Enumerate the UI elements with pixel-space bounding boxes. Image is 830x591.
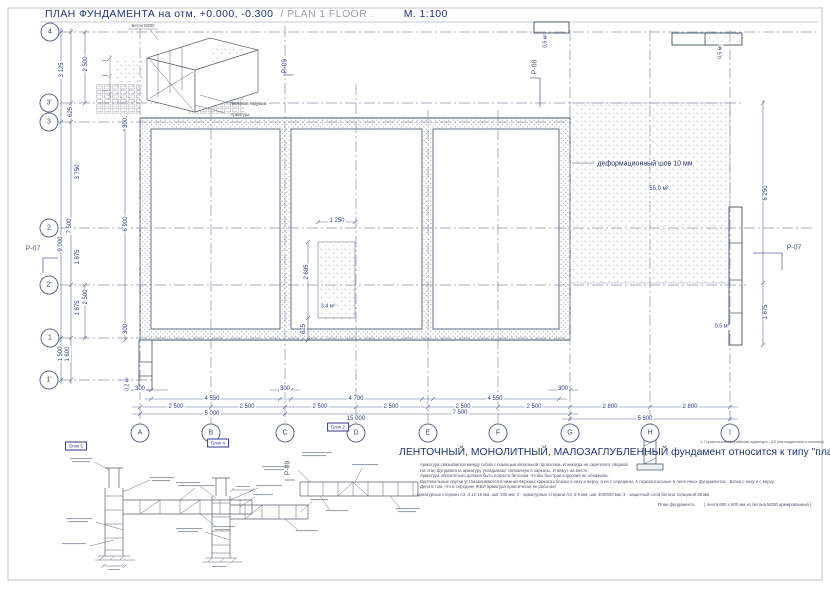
axis-bubble-h: H <box>641 424 660 443</box>
block4-label: Блок 4 <box>207 439 229 448</box>
footer-spec-label: ( лента 600 х 600 мм из бетона М200 арми… <box>704 503 811 507</box>
dim-left-1600: 1 600 <box>65 345 71 362</box>
dim-left-9000: 9 000 <box>58 235 64 252</box>
foundation-plan-sheet: ПЛАН ФУНДАМЕНТА на отм. +0.000, -0.300/ … <box>0 0 830 591</box>
dim-left-1500: 1 500 <box>58 345 64 362</box>
dim-right-1875: 1 875 <box>763 303 769 320</box>
dim-total-15000: 15 000 <box>346 416 366 422</box>
area-pit-label: 3,4 м² <box>320 304 337 310</box>
dim-left-7500: 7 500 <box>67 217 73 234</box>
dim-300-a: 300 <box>134 386 146 392</box>
axis-bubble-left-2p: 2' <box>40 276 59 295</box>
foundation-type-heading: ЛЕНТОЧНЫЙ, МОНОЛИТНЫЙ, МАЛОЗАГЛУБЛЕННЫЙ … <box>399 447 830 458</box>
axis-bubble-d: D <box>347 424 366 443</box>
dim-step-ab: 2 500 <box>167 404 184 410</box>
section-label-p08: Р-08 <box>532 59 539 76</box>
axis-bubble-left-3p: 3' <box>40 94 59 113</box>
axis-bubble-g: G <box>561 424 580 443</box>
note-line-1: Арматура связывается между собой с помощ… <box>420 463 629 467</box>
block2-label: Блок 2 <box>327 423 349 432</box>
section-label-p07-left: Р-07 <box>25 246 42 253</box>
dim-left-3750: 3 750 <box>75 163 81 180</box>
dim-span-ac: 4 550 <box>203 396 220 402</box>
dim-step-bc: 2 500 <box>238 404 255 410</box>
area-block-tr: 0,5 м² <box>719 44 724 59</box>
dim-pit-2685: 2 685 <box>304 263 310 280</box>
area-block-tl: 0,5 м² <box>544 33 549 48</box>
section-detail-3 <box>298 468 418 510</box>
area-block-right: 0,5 м² <box>714 324 731 330</box>
dim-pit-625: 625 <box>301 323 307 335</box>
axis-bubble-left-4: 4 <box>41 23 60 42</box>
dim-step-cd: 2 500 <box>311 404 328 410</box>
dim-total-5000: 5 000 <box>203 411 220 417</box>
micro-annotations <box>62 60 420 570</box>
note-line-3: Арматура обязательно должна быть покрыта… <box>420 474 609 478</box>
dim-left-1875b: 1 875 <box>75 299 81 316</box>
dim-300-g: 300 <box>557 386 569 392</box>
footer-plan-label: План фундамента <box>658 503 694 507</box>
iso-concrete-label: Бетон М200 <box>130 24 155 28</box>
dim-left-625: 625 <box>68 106 74 118</box>
axis-bubble-left-1: 1 <box>41 329 60 348</box>
dim-left-3125: 3 125 <box>59 61 65 78</box>
axis-bubble-f: F <box>489 424 508 443</box>
dim-300-c: 300 <box>279 386 291 392</box>
section-detail-2 <box>200 478 312 562</box>
dim-span-eg: 4 550 <box>486 396 503 402</box>
dim-right-6250: 6 250 <box>763 184 769 201</box>
axis-bubble-left-1p: 1' <box>40 371 59 390</box>
dim-left-1875a: 1 875 <box>75 248 81 265</box>
rebar-legend-line: 1. Горизонтальная рабочая арматура - А3 … <box>700 439 824 444</box>
dim-step-gh: 2 800 <box>601 404 618 410</box>
dim-step-fg: 2 500 <box>525 404 542 410</box>
dim-step-de: 2 500 <box>382 404 399 410</box>
title-scale: М. 1:100 <box>404 8 448 20</box>
dim-plan-6900: 6 900 <box>123 215 129 232</box>
section-label-p09-detail: Р-09 <box>285 460 292 477</box>
bottom-left-blocks <box>139 340 152 390</box>
drawing-title: ПЛАН ФУНДАМЕНТА на отм. +0.000, -0.300/ … <box>45 8 448 20</box>
iso-rebar-label: Арматура <box>230 113 251 117</box>
axis-bubble-left-2: 2 <box>40 219 59 238</box>
block5-label: Блок 5 <box>65 442 87 451</box>
dim-plan-300-top: 300 <box>123 117 129 129</box>
dim-span-ce: 4 700 <box>347 396 364 402</box>
axis-bubble-left-3: 3 <box>40 113 59 132</box>
dim-left-2500a: 2 500 <box>83 55 89 72</box>
area-slab-label: 55,0 м² <box>648 186 669 192</box>
axis-bubble-e: E <box>419 424 438 443</box>
section-label-p07-right: Р-07 <box>786 245 803 252</box>
area-block-bl: 0,2 м² <box>126 376 131 391</box>
deform-joint-label: деформационный шов 10 мм <box>596 161 693 168</box>
note-line-6: - арматурные стержни А3, d 12-16 мм, шаг… <box>414 493 709 497</box>
dim-left-2500b: 2 500 <box>83 288 89 305</box>
dim-step-hi: 2 800 <box>681 404 698 410</box>
dim-plan-300-bot: 300 <box>123 323 129 335</box>
section-label-p09-top: Р-09 <box>282 58 289 75</box>
title-main: ПЛАН ФУНДАМЕНТА на отм. +0.000, -0.300 <box>45 8 273 20</box>
top-footing-blocks <box>534 22 742 45</box>
axis-bubble-a: A <box>131 424 150 443</box>
dim-pit-1250: 1 250 <box>328 218 345 224</box>
note-line-5: Дело в том, что в середине ЖБИ арматура … <box>420 485 557 489</box>
title-secondary: / PLAN 1 FLOOR . <box>280 8 373 20</box>
dim-total-5600: 5 600 <box>636 416 653 422</box>
iso-sand-label: Песчаная подушка <box>229 102 268 106</box>
axis-bubble-c: C <box>276 424 295 443</box>
dim-total-7500: 7 500 <box>451 410 468 416</box>
